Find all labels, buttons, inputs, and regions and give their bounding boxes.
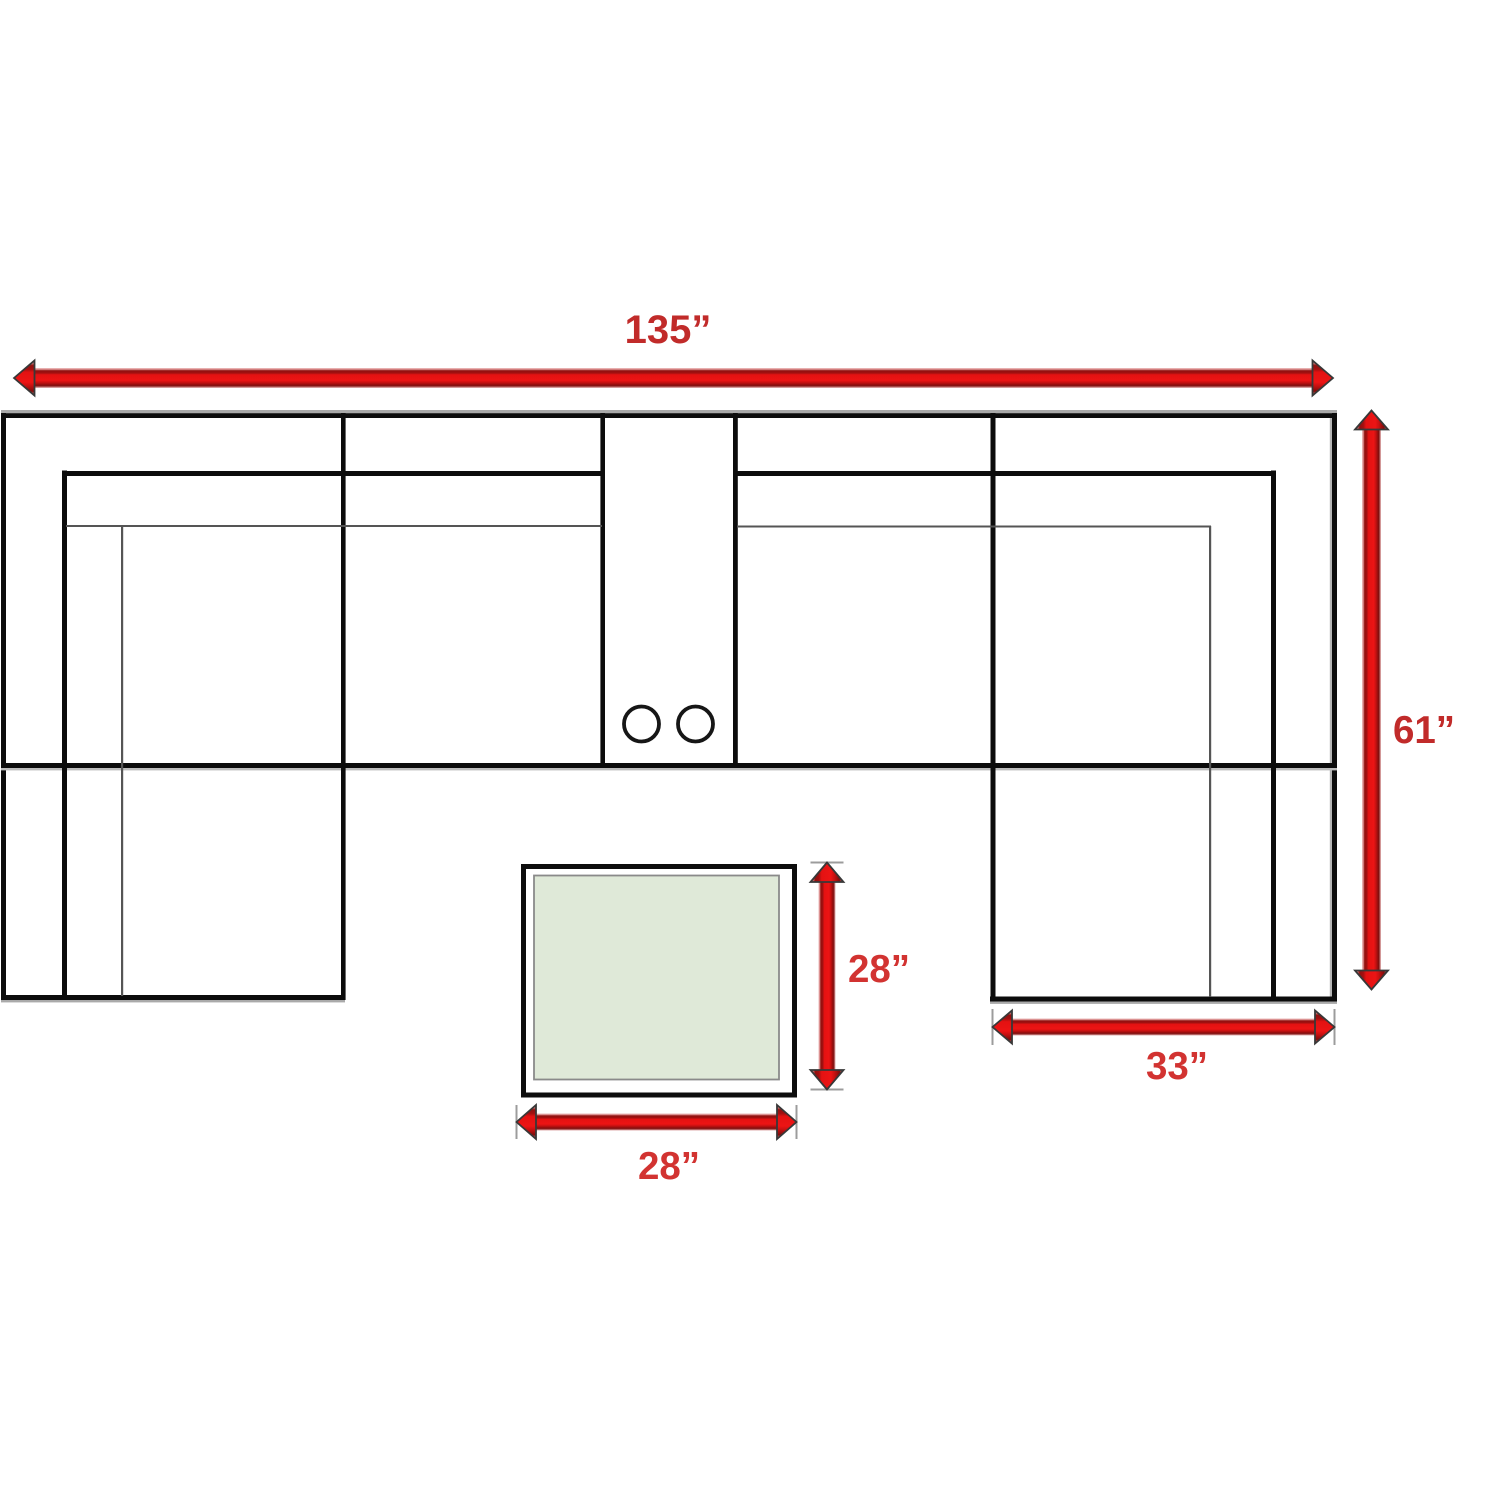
svg-text:61”: 61”: [1393, 709, 1455, 752]
svg-text:135”: 135”: [625, 308, 712, 352]
svg-text:28”: 28”: [848, 948, 910, 991]
svg-text:28”: 28”: [638, 1145, 700, 1188]
svg-text:33”: 33”: [1146, 1045, 1208, 1088]
